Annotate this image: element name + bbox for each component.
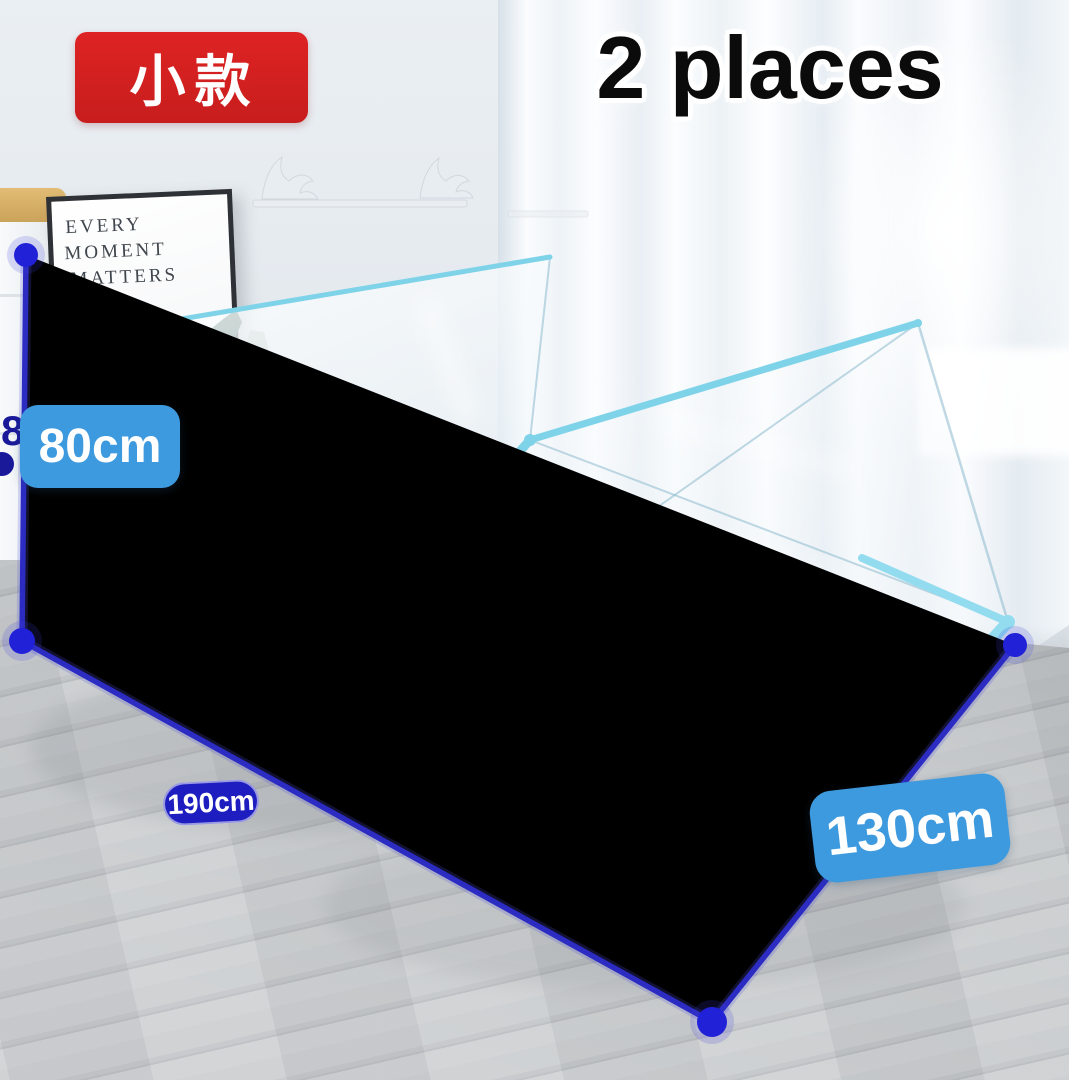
dim-endpoint-dot xyxy=(14,243,38,267)
height-badge: 80cm xyxy=(20,405,180,488)
dim-endpoint-dot xyxy=(9,628,35,654)
capacity-label: 2 places xyxy=(540,12,1000,124)
product-photo-scene: EVERY MOMENT MATTERS xyxy=(0,0,1069,1080)
length-badge: 190cm xyxy=(162,779,260,827)
dim-endpoint-dot xyxy=(697,1007,727,1037)
size-badge: 小款 xyxy=(75,32,308,123)
dim-endpoint-dot xyxy=(1003,633,1027,657)
dimension-overlay xyxy=(0,0,1069,1080)
